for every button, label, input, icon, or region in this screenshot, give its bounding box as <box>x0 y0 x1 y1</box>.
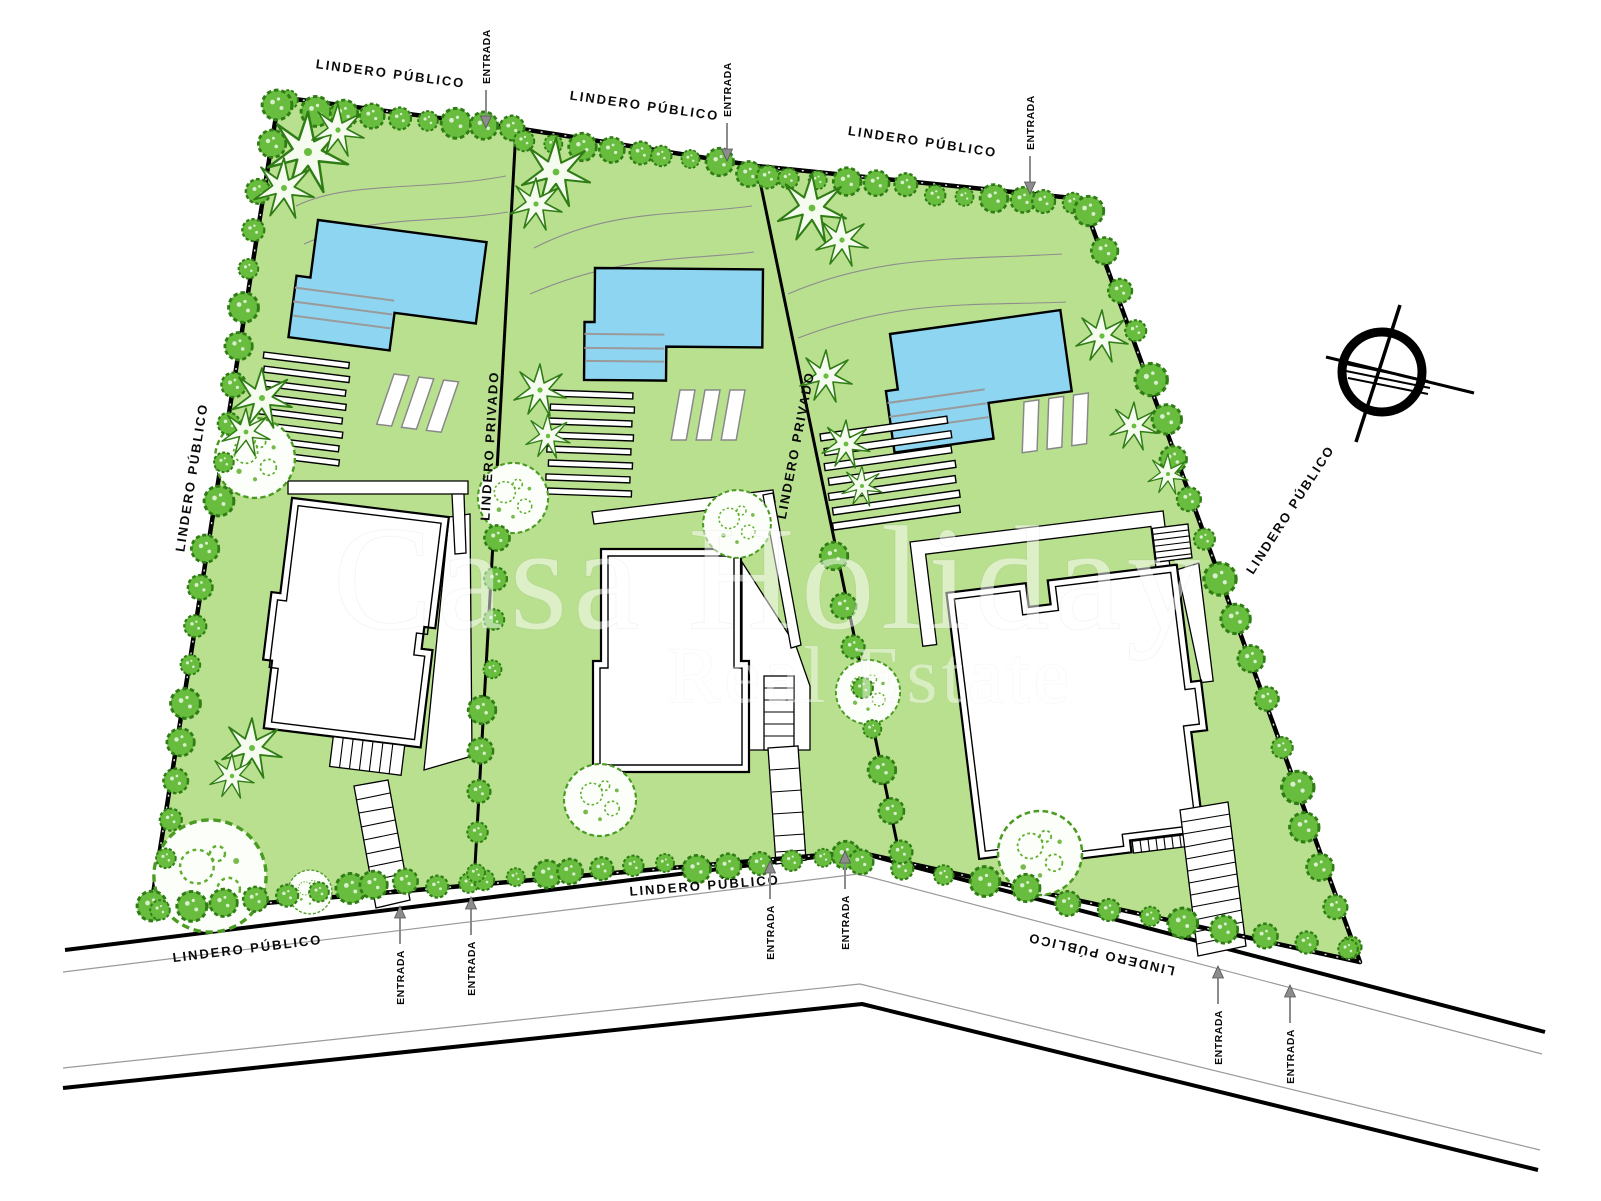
bush-tree <box>879 798 904 823</box>
site-plan-canvas: LINDERO PÚBLICO LINDERO PÚBLICO LINDERO … <box>0 0 1601 1201</box>
bush-tree <box>623 856 643 876</box>
entrance-label: ENTRADA <box>1285 1029 1297 1084</box>
entrance-label: ENTRADA <box>481 29 493 84</box>
bush-tree <box>1125 320 1146 341</box>
bush-tree <box>894 173 917 196</box>
entrance-label: ENTRADA <box>840 895 852 950</box>
bush-tree <box>210 889 237 916</box>
bush-tree <box>160 809 182 831</box>
bush-tree <box>868 756 896 784</box>
bush-tree <box>229 293 259 323</box>
loungers-plot-2 <box>671 390 745 440</box>
entrance-label: ENTRADA <box>1213 1010 1225 1065</box>
bush-tree <box>1307 854 1334 881</box>
bush-tree <box>1013 874 1040 901</box>
entrance-label: ENTRADA <box>395 950 407 1005</box>
bush-tree <box>468 696 496 724</box>
bush-tree <box>204 486 234 516</box>
label-public-boundary-right: LINDERO PÚBLICO <box>1243 442 1338 576</box>
bush-tree <box>242 219 264 241</box>
loungers-plot-3 <box>1022 393 1088 453</box>
entrance-label: ENTRADA <box>722 62 734 117</box>
bush-tree <box>599 137 624 162</box>
bush-tree <box>682 150 700 168</box>
bush-tree <box>980 185 1008 213</box>
site-plan-page: LINDERO PÚBLICO LINDERO PÚBLICO LINDERO … <box>0 0 1601 1201</box>
label-public-boundary-bottom-left: LINDERO PÚBLICO <box>172 932 323 965</box>
bush-tree <box>1141 907 1161 927</box>
bush-tree <box>181 655 201 675</box>
bush-tree <box>1091 238 1118 265</box>
bush-tree <box>468 738 493 763</box>
bush-tree <box>863 720 881 738</box>
bush-tree <box>156 849 176 869</box>
label-public-boundary-left: LINDERO PÚBLICO <box>172 402 210 553</box>
bush-tree <box>418 111 438 131</box>
bush-tree <box>656 854 674 872</box>
bush-tree <box>262 90 292 120</box>
bush-tree <box>467 864 485 882</box>
label-public-boundary-top-3: LINDERO PÚBLICO <box>847 123 998 160</box>
bush-tree <box>1282 771 1314 803</box>
bush-tree <box>814 849 832 867</box>
bush-tree <box>1272 737 1293 758</box>
large-tree <box>154 820 266 932</box>
large-tree <box>564 764 636 836</box>
bush-tree <box>1168 908 1198 938</box>
bush-tree <box>167 729 194 756</box>
bush-tree <box>534 861 562 889</box>
bush-tree <box>360 871 387 898</box>
bush-tree <box>1074 196 1103 225</box>
large-tree <box>998 811 1082 895</box>
bush-tree <box>360 104 385 129</box>
bush-tree <box>214 453 234 473</box>
entrance-marker-bottom-6: ENTRADA <box>1285 985 1298 1084</box>
label-public-boundary-top-2: LINDERO PÚBLICO <box>569 88 720 124</box>
entrance-marker-bottom-1: ENTRADA <box>395 906 408 1005</box>
bush-tree <box>557 859 582 884</box>
bush-tree <box>468 780 491 803</box>
bush-tree <box>1290 813 1319 842</box>
bush-tree <box>1296 932 1318 954</box>
entrance-marker-top-3: ENTRADA <box>1025 95 1038 194</box>
bush-tree <box>1204 563 1236 595</box>
house-1-eave <box>288 481 468 494</box>
bush-tree <box>184 615 206 637</box>
entrance-label: ENTRADA <box>1025 95 1037 150</box>
bush-tree <box>426 876 448 898</box>
entrance-marker-bottom-2: ENTRADA <box>466 897 479 996</box>
north-compass-icon <box>1326 305 1474 442</box>
watermark-line-2: Real Estate <box>667 632 1073 720</box>
label-public-boundary-top-1: LINDERO PÚBLICO <box>315 56 466 91</box>
bush-tree <box>970 867 1000 897</box>
bush-tree <box>225 333 252 360</box>
bush-tree <box>1032 190 1055 213</box>
bush-tree <box>1253 924 1278 949</box>
bush-tree <box>1135 364 1167 396</box>
bush-tree <box>651 146 671 166</box>
bush-tree <box>864 171 889 196</box>
bush-tree <box>1324 895 1348 919</box>
bush-tree <box>1152 405 1181 434</box>
bush-tree <box>757 166 780 189</box>
entrance-label: ENTRADA <box>466 941 478 996</box>
bush-tree <box>243 887 268 912</box>
entrance-label: ENTRADA <box>765 905 777 960</box>
entrance-marker-bottom-5: ENTRADA <box>1213 966 1226 1065</box>
bush-tree <box>1055 891 1080 916</box>
bush-tree <box>925 185 945 205</box>
road-curb-lower <box>63 1004 1538 1170</box>
bush-tree <box>484 660 502 678</box>
bush-tree <box>934 865 954 885</box>
bush-tree <box>393 869 418 894</box>
bush-tree <box>441 108 471 138</box>
bush-tree <box>150 900 170 920</box>
bush-tree <box>849 850 874 875</box>
entrance-marker-top-2: ENTRADA <box>722 62 735 161</box>
bush-tree <box>1210 916 1237 943</box>
bush-tree <box>177 892 207 922</box>
bush-tree <box>1255 687 1279 711</box>
bush-tree <box>1221 604 1250 633</box>
bush-tree <box>956 188 974 206</box>
bush-tree <box>467 822 487 842</box>
bush-tree <box>221 373 246 398</box>
bush-tree <box>1238 646 1265 673</box>
bush-tree <box>276 885 298 907</box>
bush-tree <box>630 142 653 165</box>
bush-tree <box>258 130 285 157</box>
bush-tree <box>590 857 613 880</box>
bush-tree <box>507 868 525 886</box>
bush-tree <box>1338 939 1358 959</box>
bush-tree <box>782 851 802 871</box>
bush-tree <box>163 769 188 794</box>
bush-tree <box>890 841 913 864</box>
bush-tree <box>309 882 329 902</box>
bush-tree <box>171 689 201 719</box>
bush-tree <box>188 575 213 600</box>
bush-tree <box>389 108 411 130</box>
bush-tree <box>239 259 259 279</box>
bush-tree <box>191 535 218 562</box>
bush-tree <box>1108 279 1132 303</box>
bush-tree <box>1098 899 1120 921</box>
